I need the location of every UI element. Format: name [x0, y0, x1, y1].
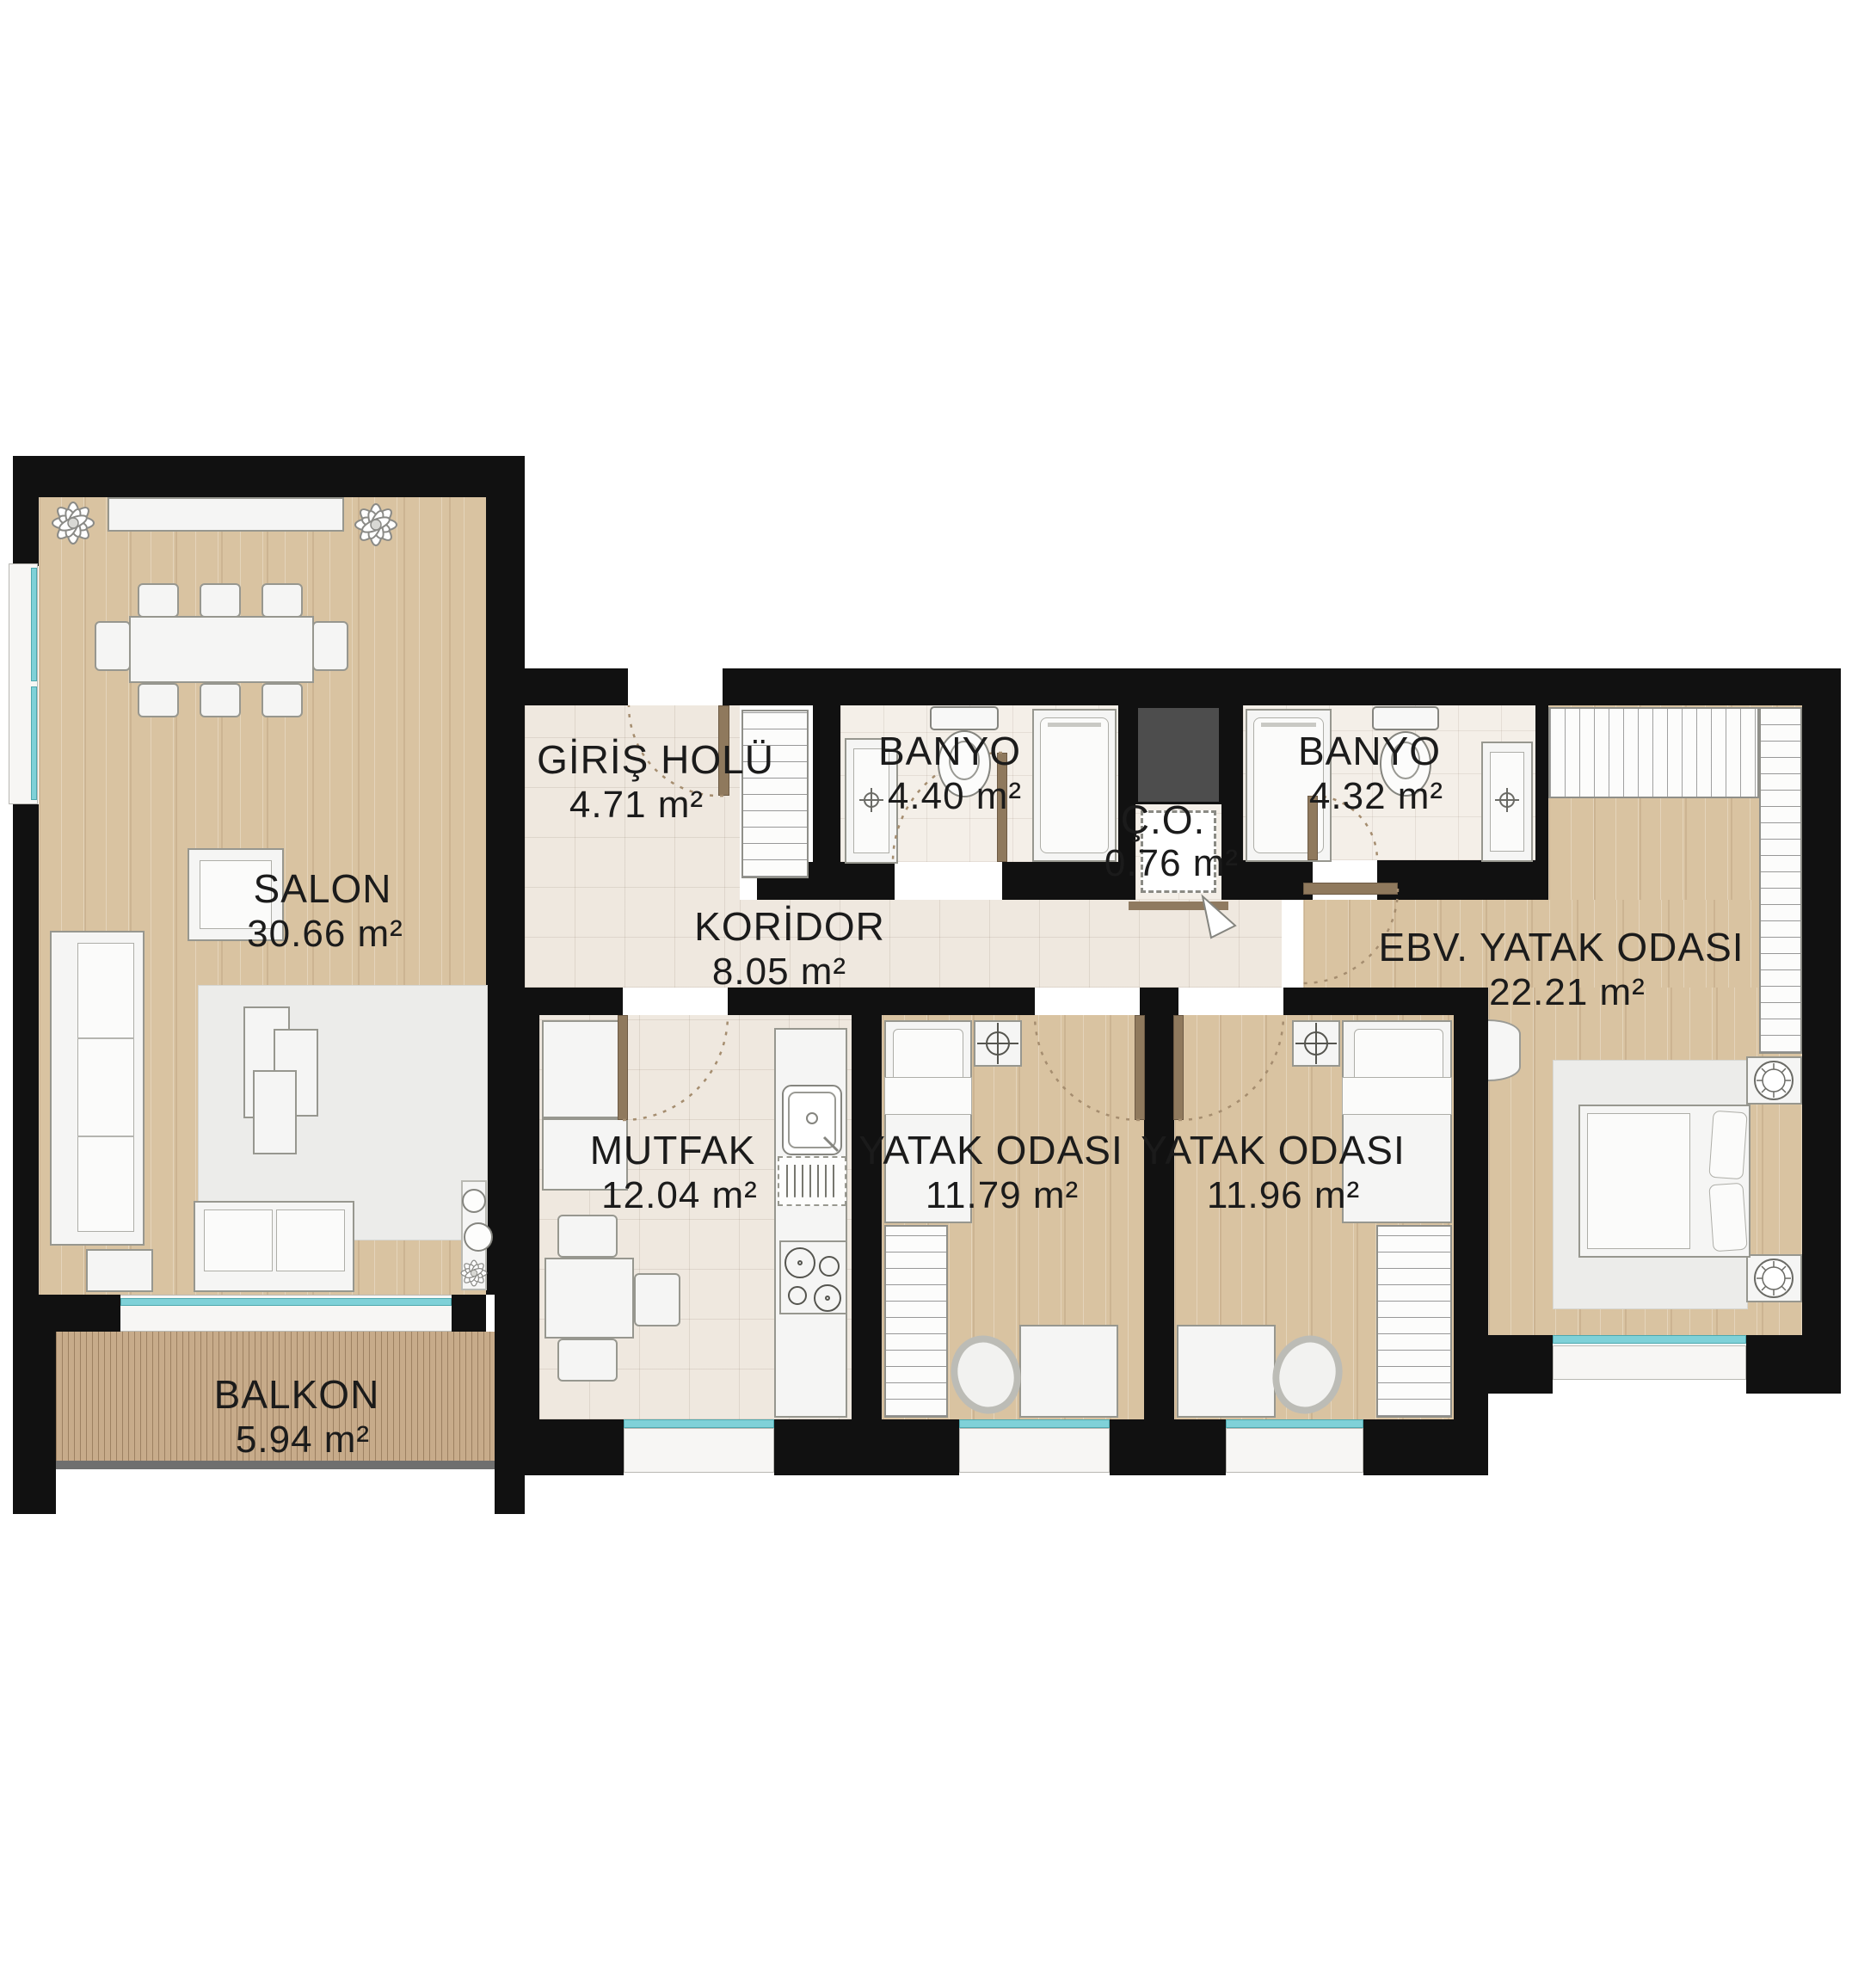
label-co-name: Ç.O.: [1121, 798, 1206, 842]
master-duvet: [1587, 1113, 1690, 1249]
dining-chair: [138, 683, 179, 717]
label-corridor-name: KORİDOR: [694, 905, 885, 949]
salon-left-window-lower: [31, 686, 37, 800]
wall-top-left-of-entry: [525, 668, 628, 705]
kitchen-chair: [557, 1215, 618, 1258]
label-entry-hall-name: GİRİŞ HOLÜ: [537, 738, 774, 782]
wall-salon-left-upper: [13, 497, 39, 566]
wall-kitchen-left: [512, 1015, 539, 1419]
dining-chair: [200, 683, 241, 717]
wall-kitchen-bedroom1: [852, 1015, 882, 1419]
master-console: [1488, 1019, 1521, 1081]
label-balcony-area: 5.94 m²: [236, 1419, 370, 1461]
sofa-seat: [77, 943, 134, 1232]
dining-chair: [200, 583, 241, 618]
bedroom1-door-leaf: [1135, 1015, 1145, 1120]
dining-chair: [261, 683, 303, 717]
wall-bottom-4: [1363, 1419, 1488, 1475]
label-entry-hall-area: 4.71 m²: [569, 785, 704, 826]
master-nightstand: [1746, 1254, 1802, 1302]
loveseat: [194, 1201, 354, 1292]
label-salon-name: SALON: [254, 867, 392, 911]
bedroom2-window-sill: [1226, 1428, 1363, 1473]
bathtub-faucet-ledge: [1261, 723, 1316, 727]
side-table: [86, 1249, 153, 1292]
label-master-bedroom-name: EBV. YATAK ODASI: [1378, 926, 1744, 969]
loveseat-cushion: [276, 1209, 345, 1271]
bathroom1-bathtub-inner: [1040, 717, 1109, 853]
label-balcony-name: BALKON: [214, 1373, 380, 1417]
bedroom2-window: [1226, 1419, 1363, 1428]
sofa-seam: [77, 1037, 134, 1039]
kitchen-counter: [774, 1028, 847, 1418]
bedroom1-window-sill: [959, 1428, 1110, 1473]
dining-chair: [261, 583, 303, 618]
dining-chair: [95, 621, 131, 671]
bedroom1-desk: [1019, 1325, 1118, 1418]
bathroom1-bathtub: [1032, 709, 1117, 862]
wall-master-bottom-left: [1488, 1335, 1553, 1394]
bathtub-faucet-ledge: [1048, 723, 1101, 727]
kitchen-window: [624, 1419, 774, 1428]
bedroom2-door-leaf: [1173, 1015, 1184, 1120]
master-window: [1553, 1335, 1746, 1344]
hall-wardrobe: [741, 710, 809, 878]
kitchen-door-leaf: [618, 1015, 628, 1120]
master-wardrobe-top: [1548, 707, 1759, 798]
bedroom2-duvet-band: [1342, 1077, 1452, 1115]
master-pillow: [1708, 1111, 1747, 1180]
salon-balcony-window: [120, 1298, 452, 1306]
kitchen-table: [545, 1258, 634, 1339]
label-bedroom1-name: YATAK ODASI: [858, 1129, 1123, 1172]
label-bathroom2-area: 4.32 m²: [1309, 776, 1443, 817]
kitchen-window-sill: [624, 1428, 774, 1473]
bathroom2-vanity: [1481, 742, 1533, 862]
master-door-leaf: [1303, 883, 1398, 895]
master-bed: [1578, 1105, 1750, 1258]
bedroom1-window: [959, 1419, 1110, 1428]
kitchen-chair: [634, 1273, 680, 1326]
bedroom2-desk: [1177, 1325, 1276, 1418]
bedroom1-pillow: [893, 1029, 963, 1082]
wall-bedrooms-top-2: [1140, 988, 1178, 1015]
console: [461, 1180, 487, 1290]
bedroom2-wardrobe: [1376, 1225, 1452, 1418]
wall-salon-top: [13, 456, 525, 497]
sideboard: [108, 497, 344, 532]
wall-bedroom1-bedroom2: [1144, 1015, 1174, 1419]
wall-top-main: [723, 668, 1841, 705]
label-kitchen-area: 12.04 m²: [601, 1175, 758, 1216]
master-window-sill: [1553, 1345, 1746, 1380]
label-corridor-area: 8.05 m²: [712, 951, 846, 993]
wall-bottom-1: [512, 1419, 624, 1475]
label-bathroom1-area: 4.40 m²: [888, 776, 1022, 817]
wall-bathroom2-bottom-left: [1243, 860, 1313, 900]
kitchen-chair: [557, 1339, 618, 1382]
salon-left-window-upper: [31, 568, 37, 681]
wall-kitchen-top-left: [512, 988, 623, 1015]
shaft: [1135, 705, 1221, 804]
dining-table: [129, 616, 314, 683]
balcony-rail: [50, 1461, 501, 1469]
bedroom1-wardrobe: [884, 1225, 948, 1418]
label-bedroom1-area: 11.79 m²: [926, 1175, 1079, 1216]
coffee-table: [253, 1070, 297, 1154]
bathroom2-sink: [1490, 752, 1524, 852]
bedroom1-nightstand: [974, 1020, 1022, 1067]
master-nightstand: [1746, 1056, 1802, 1105]
wall-master-bottom-right: [1746, 1335, 1841, 1394]
wall-bedrooms-top-3: [1283, 988, 1488, 1015]
wall-salon-balcony-stub-left: [39, 1295, 120, 1332]
label-kitchen-name: MUTFAK: [590, 1129, 756, 1172]
dining-chair: [312, 621, 348, 671]
stove: [779, 1240, 847, 1314]
sofa: [50, 931, 145, 1246]
label-bathroom2-name: BANYO: [1298, 729, 1441, 773]
label-master-bedroom-area: 22.21 m²: [1489, 972, 1646, 1013]
bedroom1-duvet-band: [884, 1077, 972, 1115]
label-bathroom1-name: BANYO: [878, 729, 1021, 773]
dining-chair: [138, 583, 179, 618]
label-co-area: 0.76 m²: [1104, 843, 1239, 884]
master-pillow: [1708, 1183, 1747, 1253]
master-wardrobe-right: [1759, 707, 1802, 1054]
wall-bedroom2-master: [1454, 1015, 1488, 1419]
label-salon-area: 30.66 m²: [247, 914, 403, 955]
co-threshold: [1129, 902, 1228, 910]
wall-salon-left-lower: [13, 804, 39, 1295]
kitchen-tall-unit: [542, 1020, 621, 1118]
sofa-seam: [77, 1136, 134, 1137]
bedroom2-pillow: [1354, 1029, 1443, 1082]
label-bedroom2-area: 11.96 m²: [1207, 1175, 1360, 1216]
wall-bathroom2-master: [1535, 705, 1548, 900]
wall-salon-balcony-stub-right: [452, 1295, 486, 1332]
wall-right: [1802, 675, 1841, 1342]
label-bedroom2-name: YATAK ODASI: [1141, 1129, 1406, 1172]
wall-bottom-2: [774, 1419, 959, 1475]
wall-hall-bathroom1: [813, 705, 840, 862]
wall-bottom-3: [1110, 1419, 1226, 1475]
wall-bathroom2-bottom-right: [1377, 860, 1548, 900]
dish-drainer: [778, 1156, 846, 1206]
floor-plan: SALON 30.66 m² GİRİŞ HOLÜ 4.71 m² BANYO …: [0, 0, 1852, 1988]
loveseat-cushion: [204, 1209, 273, 1271]
bedroom2-nightstand: [1292, 1020, 1340, 1067]
